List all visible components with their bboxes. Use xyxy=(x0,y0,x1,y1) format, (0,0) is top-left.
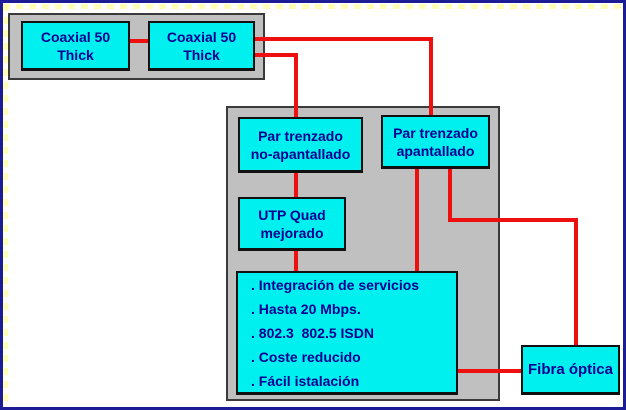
node-label: Fibra óptica xyxy=(528,361,613,379)
node-label: Coaxial 50 xyxy=(41,28,110,46)
node-utp-quad-mejorado: UTP Quad mejorado xyxy=(238,197,346,251)
yellow-dash-artifact-top xyxy=(3,4,623,9)
service-item: . Hasta 20 Mbps. xyxy=(251,297,361,321)
connector-apantallado-fibra-h xyxy=(448,218,578,222)
node-coaxial-50-thick-2: Coaxial 50 Thick xyxy=(148,21,255,71)
connector-noapantallado-quad xyxy=(294,171,298,199)
node-label: Coaxial 50 xyxy=(167,28,236,46)
connector-coax2-apantallado-v xyxy=(429,37,433,117)
node-label: Thick xyxy=(57,46,94,64)
node-label: Thick xyxy=(183,46,220,64)
service-item: . Integración de servicios xyxy=(251,273,419,297)
node-label: UTP Quad xyxy=(258,206,325,224)
connector-coax2-apantallado-h xyxy=(255,37,433,41)
connector-apantallado-services xyxy=(415,167,419,273)
node-par-trenzado-apantallado: Par trenzado apantallado xyxy=(381,115,490,169)
node-services-list: . Integración de servicios . Hasta 20 Mb… xyxy=(236,271,458,395)
connector-coax1-coax2 xyxy=(130,39,148,43)
service-item: . Fácil istalación xyxy=(251,369,359,393)
node-label: mejorado xyxy=(260,224,323,242)
node-label: no-apantallado xyxy=(251,145,351,163)
connector-coax2-noapantallado-h xyxy=(255,53,298,57)
connector-quad-services xyxy=(294,249,298,273)
node-par-trenzado-no-apantallado: Par trenzado no-apantallado xyxy=(238,117,363,173)
node-label: apantallado xyxy=(397,142,475,160)
node-coaxial-50-thick-1: Coaxial 50 Thick xyxy=(21,21,130,71)
service-item: . 802.3 802.5 ISDN xyxy=(251,321,374,345)
diagram-canvas: Coaxial 50 Thick Coaxial 50 Thick Par tr… xyxy=(0,0,626,410)
node-label: Par trenzado xyxy=(393,124,478,142)
connector-apantallado-fibra-v1 xyxy=(448,167,452,222)
connector-coax2-noapantallado-v xyxy=(294,53,298,119)
node-label: Par trenzado xyxy=(258,127,343,145)
connector-services-fibra xyxy=(457,369,523,373)
connector-apantallado-fibra-v2 xyxy=(574,218,578,347)
node-fibra-optica: Fibra óptica xyxy=(521,345,620,395)
service-item: . Coste reducido xyxy=(251,345,361,369)
